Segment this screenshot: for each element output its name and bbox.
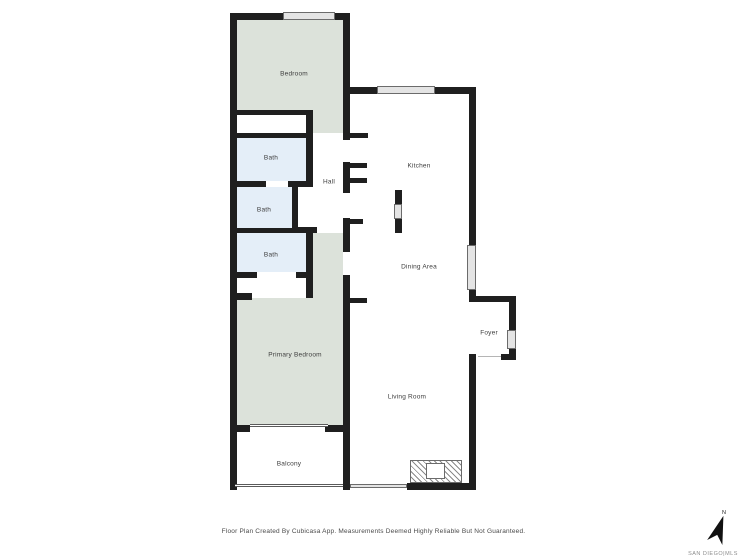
wall xyxy=(469,354,476,490)
wall xyxy=(350,178,367,183)
wall xyxy=(306,233,313,298)
entry-door xyxy=(478,356,501,357)
window xyxy=(283,12,335,20)
fireplace-hatch-inner xyxy=(426,463,445,479)
window xyxy=(377,86,435,94)
kitchen-island-segment xyxy=(395,219,402,233)
room-label-bath-middle: Bath xyxy=(257,207,271,214)
wall xyxy=(509,296,516,360)
wall xyxy=(350,219,363,224)
wall xyxy=(350,298,367,303)
window xyxy=(467,245,476,290)
north-arrow-icon xyxy=(701,512,735,553)
mls-logo-label: SAN DIEGO|MLS xyxy=(683,551,743,557)
wall xyxy=(350,163,367,168)
sliding-door xyxy=(350,484,407,488)
wall xyxy=(343,218,350,252)
room-label-dining-area: Dining Area xyxy=(401,264,437,271)
room-label-hall: Hall xyxy=(323,179,335,186)
compass: N SAN DIEGO|MLS xyxy=(683,510,743,557)
wall xyxy=(230,272,257,278)
room-label-primary-bedroom: Primary Bedroom xyxy=(268,352,322,359)
wall xyxy=(230,13,237,490)
room-label-foyer: Foyer xyxy=(480,330,498,337)
disclaimer-text: Floor Plan Created By Cubicasa App. Meas… xyxy=(0,528,747,535)
wall xyxy=(230,110,312,115)
room-label-living-room: Living Room xyxy=(388,394,426,401)
wall xyxy=(343,275,350,490)
balcony-railing xyxy=(250,424,328,427)
wall xyxy=(230,133,313,138)
balcony-railing xyxy=(235,484,343,487)
bedroom-fill xyxy=(237,20,343,110)
primary-bedroom-fill xyxy=(237,298,313,425)
room-label-bath-lower: Bath xyxy=(264,252,278,259)
wall xyxy=(230,228,298,233)
wall xyxy=(343,13,350,140)
kitchen-island-sink xyxy=(394,204,402,219)
wall xyxy=(292,183,298,233)
floor-plan: BedroomBathHallBathBathKitchenDining Are… xyxy=(0,0,747,560)
wall xyxy=(407,483,476,490)
wall xyxy=(350,133,368,138)
window xyxy=(507,330,516,349)
wall xyxy=(306,110,313,187)
primary-bedroom-fill xyxy=(313,233,343,425)
room-label-bath-upper: Bath xyxy=(264,155,278,162)
bedroom-fill xyxy=(313,110,343,133)
kitchen-island-segment xyxy=(395,190,402,204)
floor-plan-image: BedroomBathHallBathBathKitchenDining Are… xyxy=(0,0,747,560)
wall xyxy=(296,272,313,278)
wall xyxy=(230,293,252,300)
room-label-kitchen: Kitchen xyxy=(407,163,430,170)
room-label-bedroom: Bedroom xyxy=(280,71,308,78)
wall xyxy=(230,425,250,432)
wall xyxy=(230,181,266,187)
wall xyxy=(501,354,516,360)
wall xyxy=(343,162,350,193)
room-label-balcony: Balcony xyxy=(277,461,302,468)
